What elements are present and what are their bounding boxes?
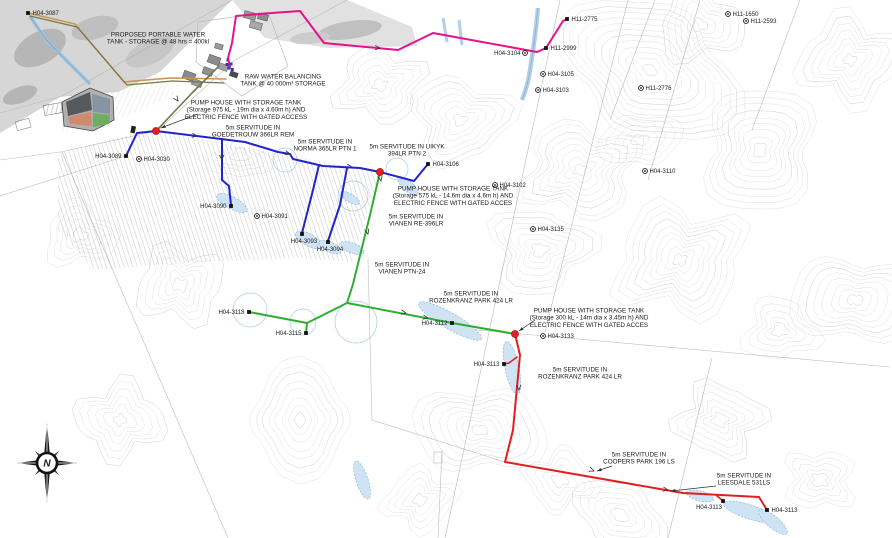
marker-label: H04-3091 (262, 214, 289, 220)
pipeline-node-marker (124, 154, 128, 158)
marker-label: H04-3093 (291, 239, 318, 245)
annotation-servitude-rozenkranz-2: 5m SERVITUDE INROZENKRANZ PARK 424 LR (538, 367, 622, 381)
pipeline-node-marker (426, 162, 430, 166)
marker-label: H04-3106 (433, 162, 460, 168)
marker-label: H11-2776 (646, 86, 673, 92)
survey-point-marker (744, 19, 749, 24)
pipeline-node-marker (300, 232, 304, 236)
flow-direction-tick (173, 96, 179, 103)
marker-label: H04-3087 (33, 11, 60, 17)
weir-symbol (130, 126, 136, 134)
survey-point-marker (531, 227, 536, 232)
pipeline-green-branch-west (307, 303, 347, 323)
annotation-pump-house-1: PUMP HOUSE WITH STORAGE TANK(Storage 975… (185, 100, 307, 121)
pipeline-node-marker (304, 331, 308, 335)
annotation-servitude-norma: 5m SERVITUDE INNORMA 365LR PTN 1 (294, 139, 357, 153)
marker-label: H04-3094 (317, 247, 344, 253)
servitude-pipeline-map: H04-3087H11-2775H11-1650H11-2593H11-2999… (0, 0, 892, 538)
marker-label: H04-3113 (772, 508, 799, 514)
pipeline-node-marker (544, 46, 548, 50)
survey-point-marker (541, 72, 546, 77)
annotation-servitude-leesdale: 5m SERVITUDE INLEESDALE 531LS (717, 473, 772, 487)
annotation-servitude-vianen-re: 5m SERVITUDE INVIANEN RE-396LR (389, 214, 444, 228)
pump-house-node (152, 127, 159, 134)
marker-label: H04-3105 (548, 72, 575, 78)
marker-label: H04-3104 (494, 51, 521, 57)
marker-label: H04-3118 (219, 310, 246, 316)
annotation-pump-house-2: PUMP HOUSE WITH STORAGE TANK(Storage 575… (393, 186, 514, 207)
north-arrow-compass: N (17, 423, 77, 503)
marker-label: H04-3030 (144, 157, 171, 163)
annotation-servitude-goedetrouw: 5m SERVITUDE INGOEDETROUW 366LR REM (212, 125, 295, 139)
pipeline-node-marker (247, 310, 251, 314)
pipeline-node-marker (765, 508, 769, 512)
pump-house-node (511, 330, 518, 337)
pipeline-node-marker (26, 11, 30, 15)
marker-label: H04-3089 (95, 154, 122, 160)
survey-point-marker (523, 51, 528, 56)
pipeline-node-marker (502, 362, 506, 366)
marker-label: H04-3090 (200, 204, 227, 210)
marker-label: H04-3135 (538, 227, 565, 233)
marker-label: H04-3113 (696, 505, 723, 511)
marker-label: H11-2775 (572, 17, 599, 23)
survey-point-marker (639, 86, 644, 91)
annotation-servitude-uikyk: 5m SERVITUDE IN UIKYK394LR PTN 2 (369, 144, 445, 158)
pipeline-blue-tail-uikyk (380, 164, 428, 181)
pipeline-green-branch-3118 (249, 312, 307, 323)
marker-label: H11-2593 (751, 19, 778, 25)
marker-label: H04-3103 (543, 88, 570, 94)
marker-label: H11-1650 (733, 12, 760, 18)
marker-label: H04-3115 (276, 331, 303, 337)
annotation-servitude-coopers: 5m SERVITUDE INCOOPERS PARK 196 LS (603, 452, 675, 466)
marker-label: H04-3133 (548, 334, 575, 340)
flow-direction-tick (589, 467, 595, 473)
pipeline-node-marker (721, 499, 725, 503)
compass-north-label: N (43, 459, 51, 470)
marker-label: H04-3113 (474, 362, 501, 368)
survey-point-marker (643, 169, 648, 174)
marker-label: H04-3112 (422, 321, 449, 327)
survey-point-marker (137, 157, 142, 162)
survey-point-marker (536, 88, 541, 93)
marker-label: H04-3110 (650, 169, 677, 175)
pipeline-node-marker (326, 240, 330, 244)
annotation-raw-water-tank: RAW WATER BALANCINGTANK @ 40 000m³ STORA… (240, 74, 325, 88)
annotation-proposed-tank: PROPOSED PORTABLE WATERTANK - STORAGE @ … (107, 32, 209, 46)
pipeline-node-marker (229, 204, 233, 208)
map-canvas: H04-3087H11-2775H11-1650H11-2593H11-2999… (0, 0, 892, 538)
survey-point-marker (726, 12, 731, 17)
annotation-pump-house-3: PUMP HOUSE WITH STORAGE TANK(Storage 300… (530, 308, 649, 329)
survey-point-marker (541, 334, 546, 339)
pipeline-node-marker (450, 321, 454, 325)
annotation-servitude-rozenkranz-1: 5m SERVITUDE INROZENKRANZ PARK 424 LR (429, 291, 513, 305)
pump-house-node (376, 168, 383, 175)
label-leader-arrow (596, 466, 612, 473)
marker-label: H11-2999 (551, 46, 578, 52)
pipeline-node-marker (565, 17, 569, 21)
survey-point-marker (255, 214, 260, 219)
annotation-servitude-vianen-ptn: 5m SERVITUDE INVIANEN PTN-24 (375, 262, 430, 276)
